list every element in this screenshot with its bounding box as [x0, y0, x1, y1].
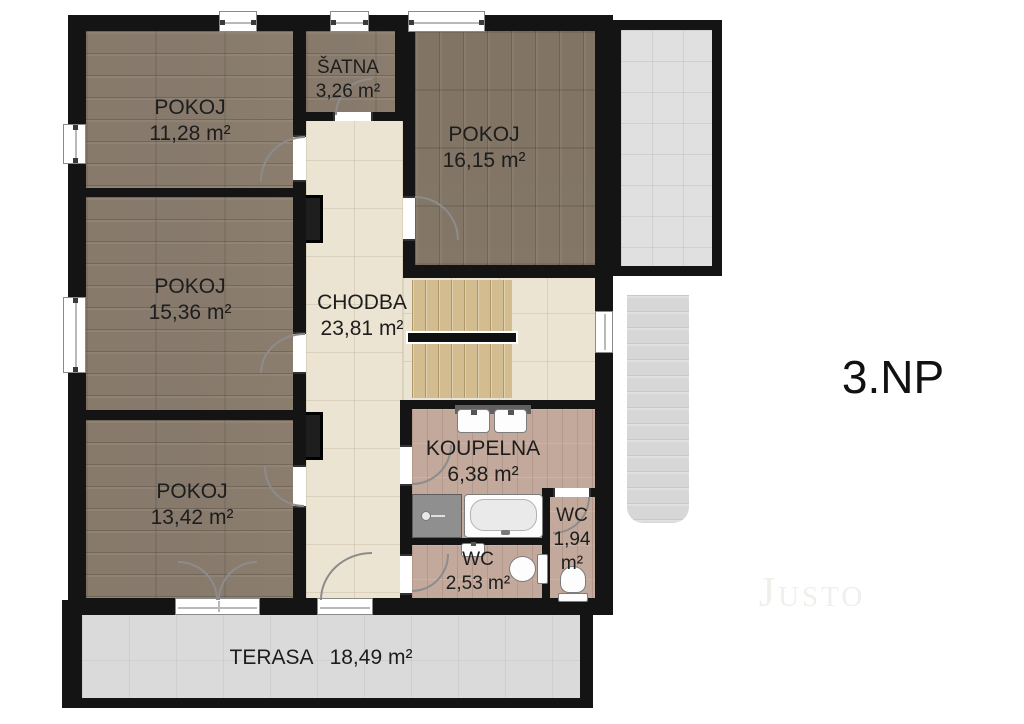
- room-area: 18,49 m²: [330, 646, 413, 669]
- window-satna: [330, 11, 369, 32]
- room-name: POKOJ: [149, 274, 232, 300]
- wall-between-pokoj1-pokoj2: [86, 188, 293, 197]
- room-name: WC: [446, 548, 510, 572]
- label-satna: ŠATNA 3,26 m²: [316, 56, 380, 104]
- window-pokoj-top-right: [408, 11, 485, 32]
- sink: [494, 409, 527, 433]
- toilet: [509, 554, 549, 584]
- room-area: 13,42 m²: [151, 505, 234, 531]
- room-name: POKOJ: [149, 95, 230, 121]
- door-koupelna: [400, 445, 412, 486]
- door-wc-large: [400, 554, 412, 595]
- window-pokoj-top-left: [219, 11, 257, 32]
- room-area: 6,38 m²: [426, 462, 540, 488]
- exterior-staircase: [627, 295, 689, 523]
- room-name: POKOJ: [151, 479, 234, 505]
- label-terasa: TERASA18,49 m²: [222, 645, 421, 671]
- bathtub: [464, 494, 543, 538]
- label-chodba: CHODBA 23,81 m²: [317, 290, 407, 342]
- label-koupelna: KOUPELNA 6,38 m²: [426, 436, 540, 488]
- room-area: 16,15 m²: [443, 148, 526, 174]
- floor-plan: POKOJ 11,28 m² ŠATNA 3,26 m² POKOJ 16,15…: [0, 0, 1024, 724]
- room-area: 1,94: [554, 528, 591, 552]
- double-door-pokoj-terasa: [175, 598, 260, 615]
- room-area: 11,28 m²: [149, 121, 230, 147]
- label-pokoj-bottom-left: POKOJ 13,42 m²: [151, 479, 234, 531]
- room-name: WC: [554, 504, 591, 528]
- room-area: 3,26 m²: [316, 80, 380, 104]
- label-pokoj-top-right: POKOJ 16,15 m²: [443, 122, 526, 174]
- door-exterior-stairs: [595, 311, 613, 353]
- door-wc-small: [553, 488, 591, 497]
- room-chodba-floor: [306, 112, 415, 598]
- label-wc-small: WC 1,94 m²: [554, 504, 591, 576]
- room-name: TERASA: [230, 646, 314, 669]
- room-name: KOUPELNA: [426, 436, 540, 462]
- room-name: CHODBA: [317, 290, 407, 316]
- label-pokoj-mid-left: POKOJ 15,36 m²: [149, 274, 232, 326]
- room-name: POKOJ: [443, 122, 526, 148]
- room-area: 23,81 m²: [317, 316, 407, 342]
- door-pokoj-top-right: [403, 196, 415, 241]
- sink: [457, 409, 490, 433]
- room-area-unit: m²: [554, 552, 591, 576]
- window-pokoj-mid-left-west: [63, 297, 86, 373]
- watermark-logo: Justo: [759, 569, 866, 617]
- label-pokoj-top-left: POKOJ 11,28 m²: [149, 95, 230, 147]
- room-name: ŠATNA: [316, 56, 380, 80]
- label-wc-large: WC 2,53 m²: [446, 548, 510, 596]
- wall-pokoj-top-right-bottom: [403, 265, 595, 278]
- door-chodba-terasa: [317, 598, 373, 615]
- shower: [412, 494, 462, 538]
- room-area: 2,53 m²: [446, 572, 510, 596]
- floor-number-label: 3.NP: [842, 350, 944, 404]
- wall-between-pokoj2-pokoj3: [86, 410, 293, 420]
- balcony-floor: [621, 30, 712, 266]
- staircase-handrail: [406, 331, 518, 344]
- room-area: 15,36 m²: [149, 300, 232, 326]
- window-pokoj-top-left-west: [63, 124, 86, 164]
